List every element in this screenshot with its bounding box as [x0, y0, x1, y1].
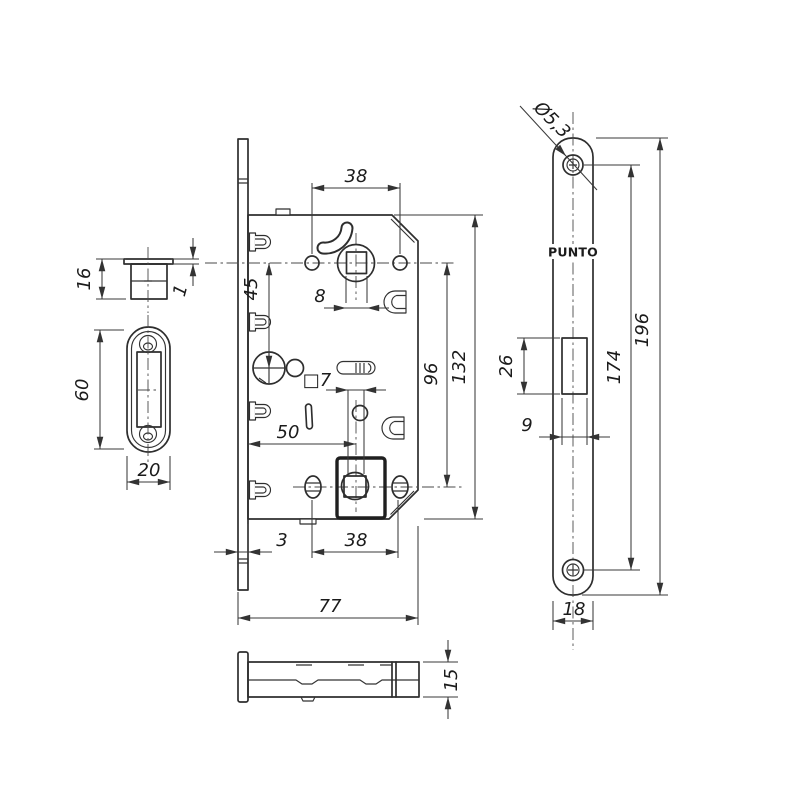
- faceplate-front-view: PUNTO Ø5,3 26 9 174 196 18: [496, 97, 668, 650]
- dim-label-body-height: 132: [449, 350, 470, 384]
- brand-label: PUNTO: [548, 245, 598, 260]
- strike-plate-front-view: 60 20: [72, 315, 170, 490]
- faceplate-edge-strip: [238, 139, 248, 590]
- lock-body-front-view: 38 8 □7 45 50 96 132 3: [205, 139, 483, 625]
- strike-plate-slot: [137, 352, 161, 427]
- clip-lower: [382, 417, 404, 439]
- bottom-tab: [300, 519, 316, 524]
- drawing-svg: 16 1 60 20: [0, 0, 800, 800]
- dim-label-backset: 50: [277, 422, 300, 443]
- dim-label-top-screw-spacing: 38: [345, 166, 368, 187]
- dim-label-latch-window-width: 9: [521, 415, 532, 436]
- technical-drawing-lock: 16 1 60 20: [0, 0, 800, 800]
- lock-body-outline: [248, 215, 418, 519]
- mount-tab-1: [250, 233, 271, 251]
- mount-tab-2: [250, 313, 271, 331]
- wc-square-hole: [344, 476, 366, 497]
- dim-label-screw-hole-dia: Ø5,3: [529, 97, 575, 143]
- dim-label-strike-plate-length: 60: [72, 379, 93, 402]
- lock-body-side-view: 15: [238, 640, 462, 719]
- dim-label-strike-box-flange: 1: [169, 282, 192, 298]
- strike-box-top-view: 16 1: [74, 238, 199, 313]
- dim-label-body-thickness: 15: [441, 669, 462, 692]
- ribbed-slot: [337, 362, 375, 375]
- dim-label-strike-plate-width: 20: [138, 460, 161, 481]
- dim-label-strike-box-height: 16: [74, 268, 95, 291]
- dim-label-handle-square: 8: [314, 286, 325, 307]
- top-tab: [276, 209, 290, 215]
- small-hole: [287, 360, 304, 377]
- dim-label-wc-square: □7: [303, 370, 332, 391]
- dim-label-body-width: 77: [319, 596, 342, 617]
- side-view-faceplate-cap: [238, 652, 248, 702]
- dim-label-handle-to-wc: 45: [241, 278, 262, 301]
- dim-label-faceplate-screw-spacing: 174: [604, 350, 625, 384]
- mount-tab-4: [250, 481, 271, 499]
- mount-tab-3: [250, 402, 271, 420]
- dim-label-bottom-screw-spacing: 38: [345, 530, 368, 551]
- pin-hole: [353, 406, 368, 421]
- dim-label-faceplate-length: 196: [632, 313, 653, 347]
- clip-upper: [384, 291, 406, 313]
- dim-label-latch-window-height: 26: [496, 355, 517, 378]
- latch-window: [562, 338, 587, 394]
- dim-label-faceplate-offset: 3: [276, 530, 287, 551]
- dim-label-faceplate-width: 18: [563, 599, 586, 620]
- dim-label-screw-to-magnet: 96: [421, 363, 442, 386]
